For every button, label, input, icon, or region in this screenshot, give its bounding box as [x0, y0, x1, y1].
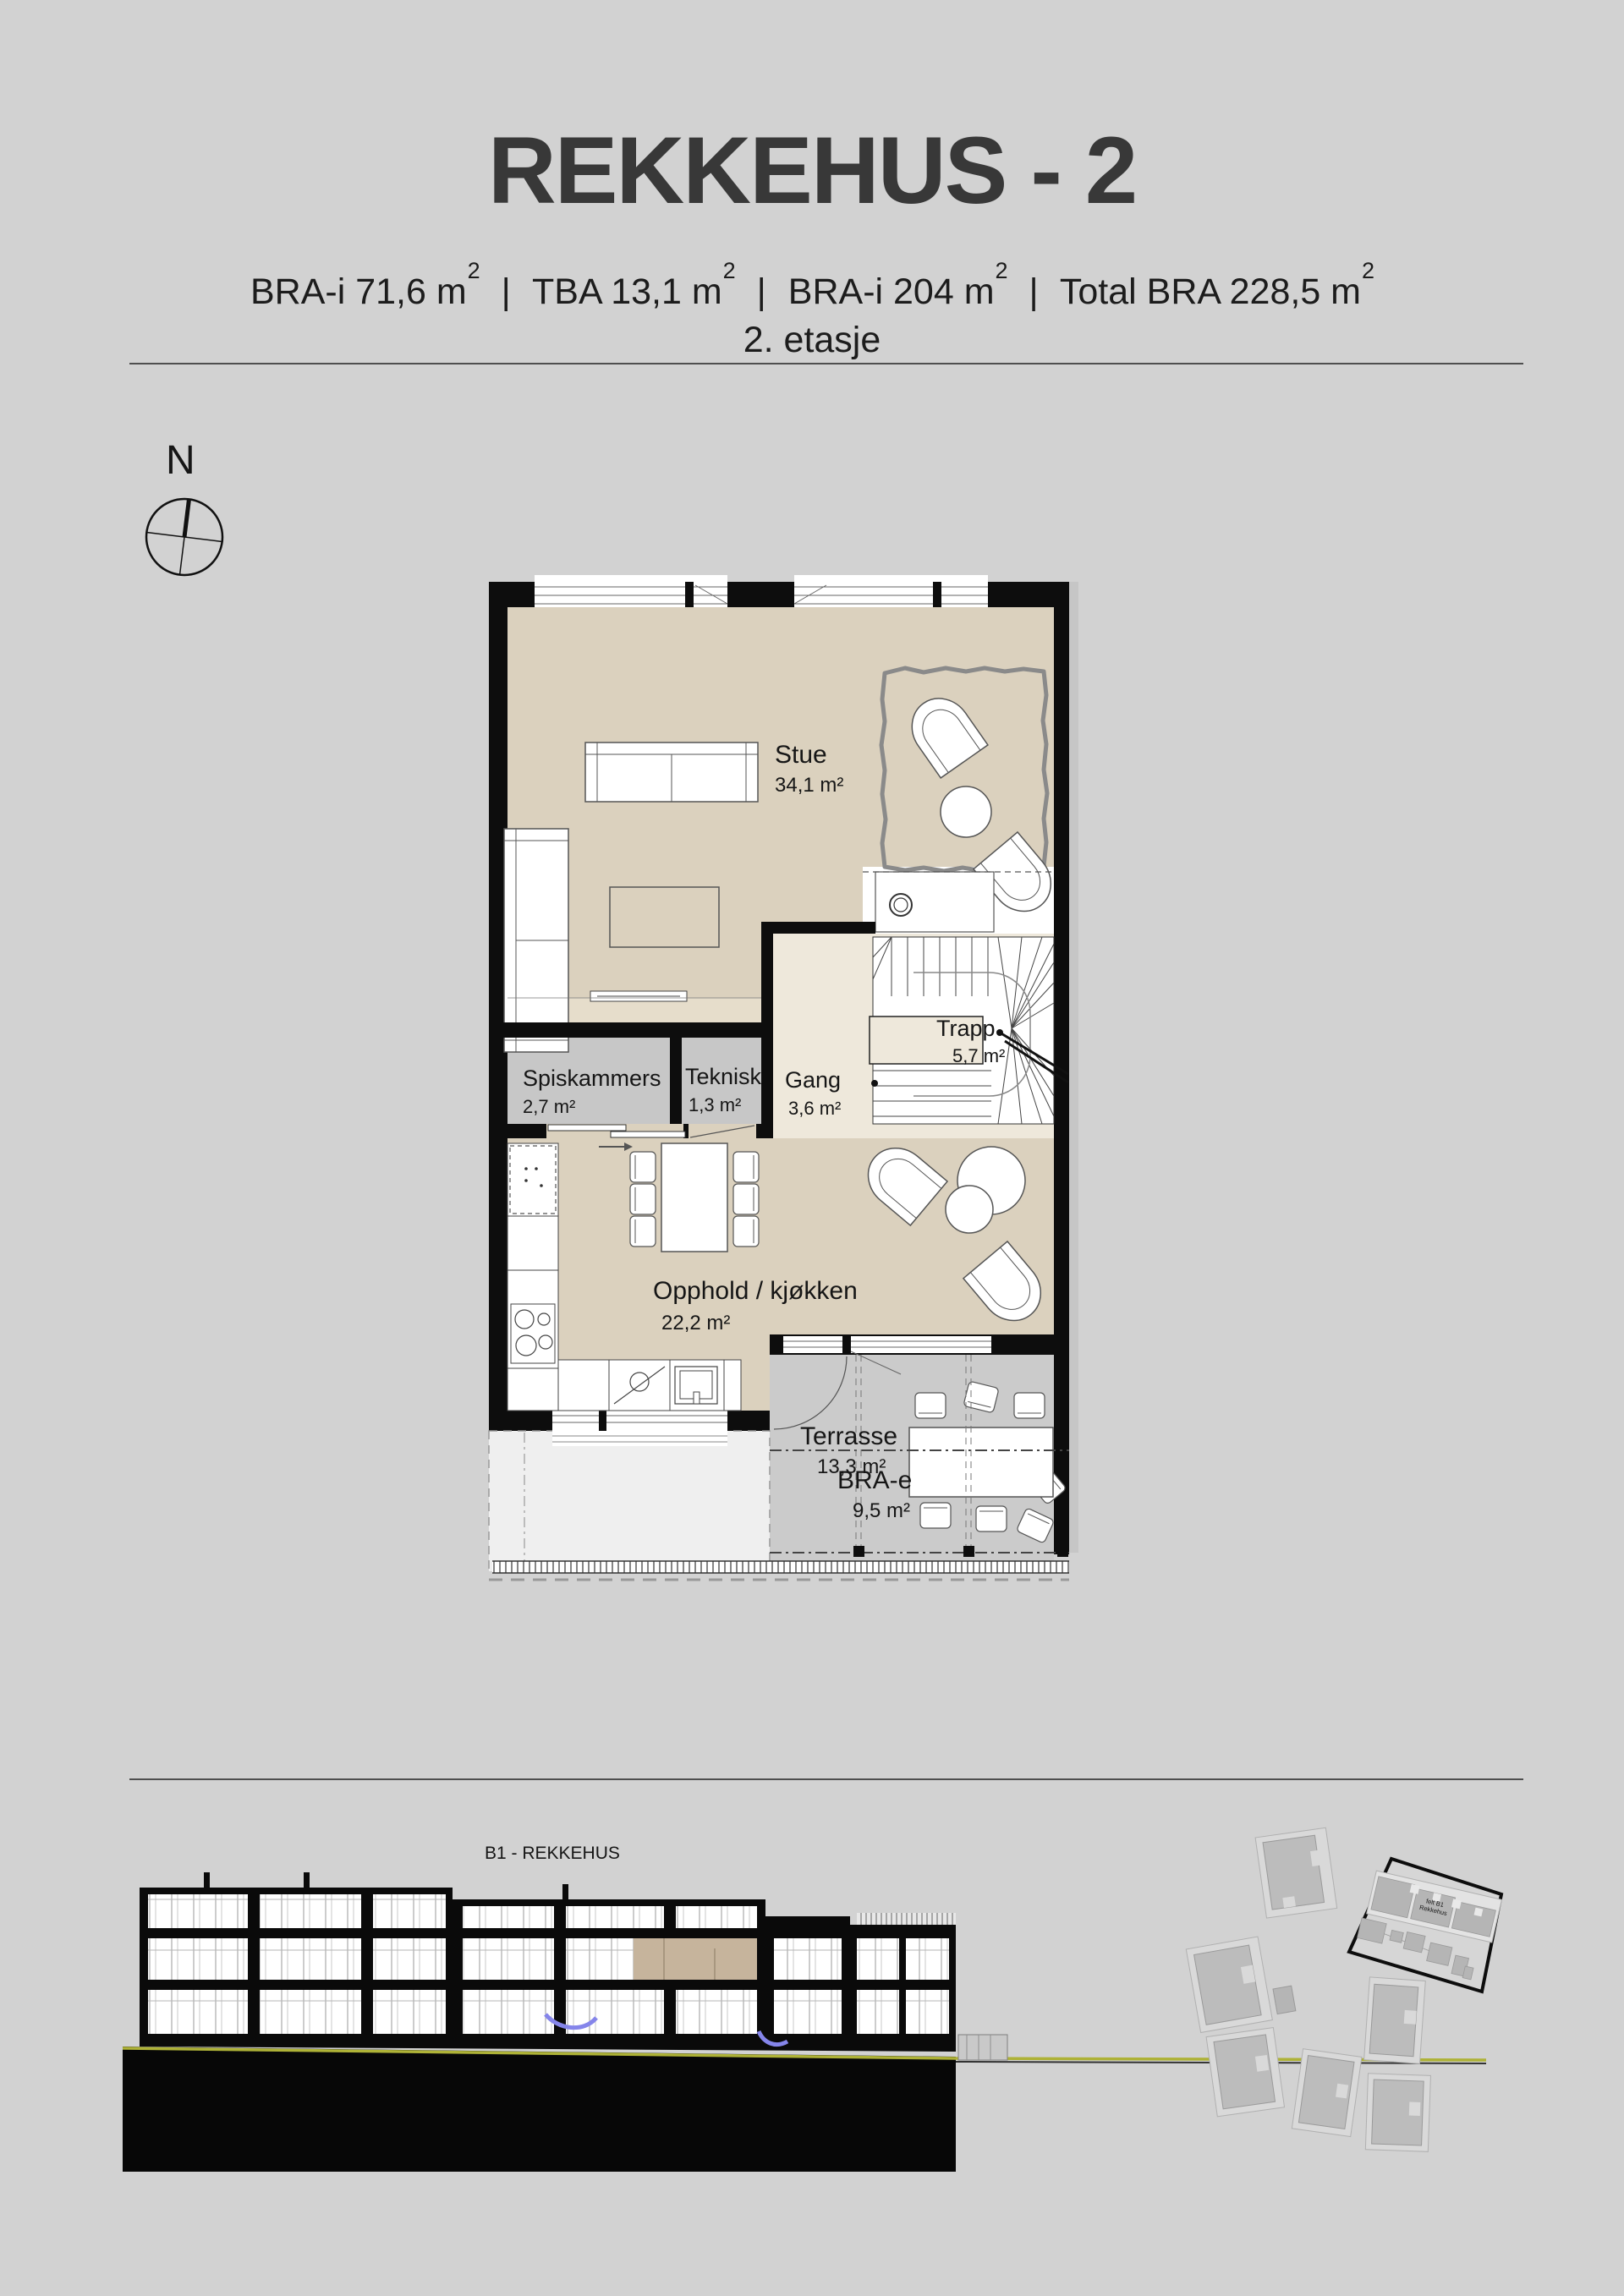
room-label-stue: Stue [775, 741, 827, 769]
floor-label: 2. etasje [0, 320, 1624, 361]
separator: | [1029, 271, 1039, 313]
site-building [1292, 2049, 1362, 2137]
wall [670, 1038, 682, 1124]
room-label-opphold: Opphold / kjøkken [653, 1277, 858, 1305]
dining-chair [630, 1184, 656, 1214]
section-highlight-room [634, 1938, 757, 1980]
dining-chair [733, 1216, 759, 1247]
tv-bench [590, 991, 687, 1001]
room-label-terrasse: Terrasse [800, 1422, 897, 1450]
coffee-table [610, 887, 719, 947]
dining-chair [733, 1184, 759, 1214]
sliding-door [546, 1124, 685, 1138]
area-segment: Total BRA 228,5 m2 [1060, 271, 1374, 312]
window [552, 1411, 727, 1446]
post [1057, 1546, 1068, 1557]
roof-railing [857, 1913, 956, 1925]
outbuilding [958, 2035, 1007, 2060]
outdoor-chair [1014, 1393, 1045, 1418]
compass-n-label: N [166, 438, 195, 483]
page-title: REKKEHUS - 2 [0, 123, 1624, 218]
outdoor-strip [489, 1431, 770, 1571]
room-area-bra-e: 9,5 m² [853, 1499, 910, 1522]
area-segment: BRA-i 204 m2 [788, 271, 1007, 312]
room-area-stue: 34,1 m² [775, 774, 843, 797]
room-label-gang: Gang [785, 1067, 841, 1093]
footer-rule [129, 1778, 1523, 1780]
wall [489, 1022, 761, 1038]
side-table [941, 786, 991, 837]
wall [761, 922, 875, 934]
outdoor-chair [920, 1503, 951, 1528]
room-area-trapp: 5,7 m² [952, 1045, 1005, 1066]
compass-icon [142, 495, 227, 579]
window [794, 575, 988, 607]
neighbour-strip [1069, 582, 1078, 1553]
room-label-trapp: Trapp [936, 1016, 996, 1041]
room-area-gang: 3,6 m² [788, 1098, 841, 1119]
side-table [946, 1186, 993, 1233]
deck-edge [489, 1561, 1069, 1580]
area-summary: BRA-i 71,6 m2 | TBA 13,1 m2 | BRA-i 204 … [0, 271, 1624, 313]
post [853, 1546, 864, 1557]
room-area-spiskammers: 2,7 m² [523, 1096, 575, 1117]
compass: N [135, 427, 245, 588]
section-label: B1 - REKKEHUS [485, 1844, 620, 1863]
window [535, 575, 727, 607]
section-building [140, 1872, 956, 2052]
post [963, 1546, 974, 1557]
separator: | [757, 271, 766, 313]
chaise-sofa [504, 829, 568, 1052]
dining-chair [733, 1152, 759, 1182]
site-plan: felt B1 Rekkehus [1167, 1810, 1548, 2233]
outdoor-chair [915, 1393, 946, 1418]
cooktop [511, 1304, 555, 1363]
room-area-opphold: 22,2 m² [661, 1312, 730, 1334]
site-building [1186, 1937, 1272, 2032]
plan-sheet: REKKEHUS - 2 BRA-i 71,6 m2 | TBA 13,1 m2… [0, 0, 1624, 2296]
room-label-teknisk: Teknisk [685, 1064, 762, 1089]
room-area-teknisk: 1,3 m² [689, 1094, 741, 1115]
outdoor-chair [976, 1506, 1007, 1532]
site-building [1365, 2074, 1430, 2152]
section-marker [871, 1080, 878, 1087]
outdoor-table [909, 1427, 1053, 1497]
room-label-spiskammers: Spiskammers [523, 1066, 661, 1091]
area-segment: TBA 13,1 m2 [532, 271, 735, 312]
room-label-bra-e: BRA-e [837, 1466, 912, 1494]
dining-chair [630, 1152, 656, 1182]
sofa [585, 743, 758, 802]
site-building [1273, 1986, 1296, 2014]
wall [761, 922, 773, 1138]
dining-table [630, 1143, 759, 1252]
outdoor-dining [909, 1381, 1067, 1543]
site-building [1255, 1827, 1337, 1918]
floor-plan: Stue 34,1 m² Trapp 5,7 m² Spiskammers 2,… [474, 575, 1078, 1581]
dining-chair [630, 1216, 656, 1247]
header-rule [129, 363, 1523, 364]
oven [675, 1367, 717, 1404]
site-building [1364, 1977, 1426, 2063]
area-segment: BRA-i 71,6 m2 [250, 271, 480, 312]
site-building [1206, 2028, 1284, 2117]
separator: | [502, 271, 511, 313]
door-teknisk [689, 1124, 756, 1138]
